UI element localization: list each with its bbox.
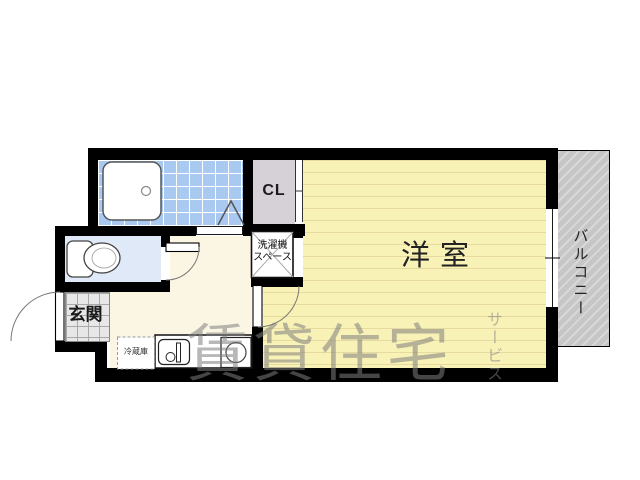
sink-faucet bbox=[177, 343, 181, 362]
floorplan: 洋室 CL 玄関 洗濯機 スペース 冷蔵庫 バルコニー 賃貸住宅 サービス bbox=[0, 0, 640, 480]
washer-space-label-line1: 洗濯機 bbox=[250, 240, 295, 252]
toilet-bowl bbox=[84, 243, 120, 273]
washer-space-label: 洗濯機 スペース bbox=[250, 240, 295, 263]
stove-burner bbox=[226, 343, 246, 363]
refrigerator-label: 冷蔵庫 bbox=[117, 348, 155, 357]
entrance-label: 玄関 bbox=[62, 306, 109, 325]
kitchen-sink bbox=[159, 340, 190, 365]
sink-drain bbox=[166, 353, 175, 362]
toilet-door-leaf bbox=[166, 243, 199, 252]
fixtures-layer bbox=[0, 0, 640, 480]
room-door-swing bbox=[258, 286, 299, 327]
bathtub-drain bbox=[142, 187, 151, 196]
bathroom-folding-door bbox=[218, 201, 244, 225]
balcony-label: バルコニー bbox=[571, 218, 588, 328]
western-room-label: 洋室 bbox=[375, 241, 495, 273]
bathtub bbox=[103, 162, 161, 220]
bathroom-door-sill bbox=[197, 227, 243, 235]
room-door-leaf bbox=[253, 286, 262, 328]
washer-space-label-line2: スペース bbox=[250, 252, 295, 264]
closet-label: CL bbox=[253, 182, 295, 200]
entrance-door-swing bbox=[11, 292, 60, 341]
